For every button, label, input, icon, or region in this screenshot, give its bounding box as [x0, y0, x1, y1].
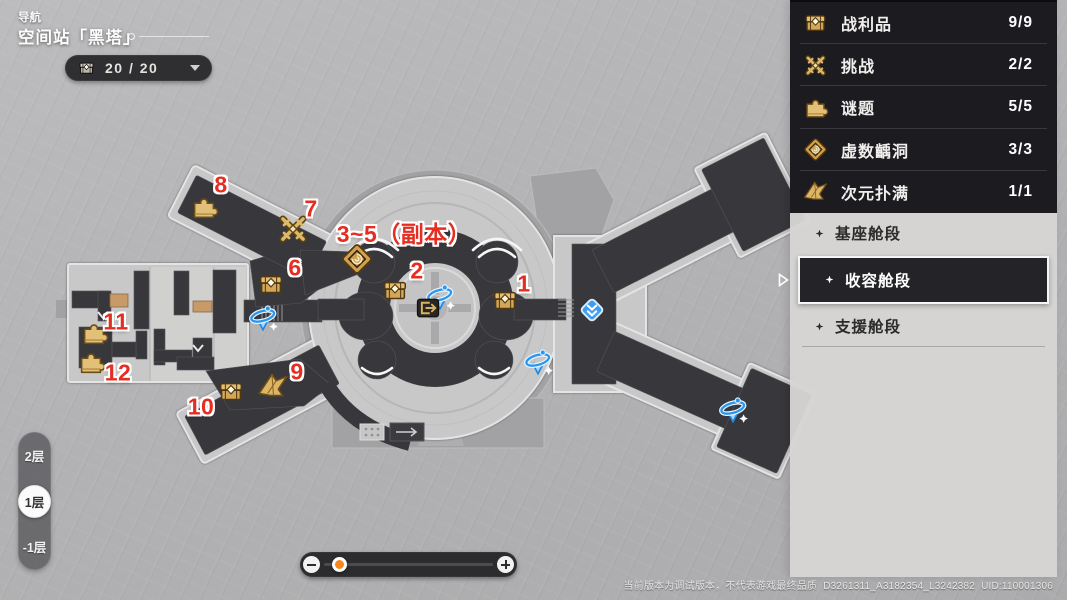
legend-stats: 战利品 9/9 挑战 2/2 谜题 5/5 虚数齲洞 3/3 次元扑满 1/1 [790, 0, 1057, 213]
marker-number[interactable]: 9 [290, 359, 303, 386]
zoom-slider [300, 552, 517, 577]
deco-ring [128, 33, 135, 40]
elevator-icon[interactable] [414, 294, 442, 322]
chest-counter-value: 20 / 20 [105, 60, 158, 76]
floor-button-2层[interactable]: 2层 [25, 446, 44, 465]
version-disclaimer: 当前版本为调试版本，不代表游戏最终品质D3261311_A3182354_L32… [617, 577, 1053, 592]
marker-number[interactable]: 1 [517, 271, 530, 298]
puzzle-marker-icon[interactable] [76, 347, 106, 377]
stat-value: 1/1 [1008, 183, 1033, 201]
marker-number[interactable]: 7 [304, 196, 317, 223]
region-label: 支援舱段 [835, 315, 901, 337]
zoom-slider-track[interactable] [324, 563, 493, 566]
zoom-out-button[interactable] [303, 556, 320, 573]
stat-row-chest[interactable]: 战利品 9/9 [790, 2, 1057, 44]
chevron-down-icon [190, 65, 200, 71]
star-bullet-icon [815, 322, 824, 331]
uid-text: UID:110001306 [981, 581, 1053, 592]
floor-button--1层[interactable]: -1层 [23, 537, 47, 556]
bird-marker-icon[interactable] [256, 369, 290, 403]
chest-icon [802, 10, 829, 37]
zoom-in-button[interactable] [497, 556, 514, 573]
region-label: 基座舱段 [835, 222, 901, 244]
breadcrumb: 导航 [18, 9, 41, 25]
region-item-1[interactable]: 收容舱段 [798, 256, 1049, 304]
stat-value: 5/5 [1008, 98, 1033, 116]
stat-row-swords[interactable]: 挑战 2/2 [790, 44, 1057, 86]
map-screen: 123~5（副本）6789101112 导航 空间站「黑塔」 20 / 20 战… [0, 0, 1067, 600]
floor-selector: 2层1层-1层 [18, 432, 51, 570]
stat-label: 次元扑满 [841, 180, 909, 204]
stat-label: 战利品 [841, 11, 892, 35]
stat-value: 3/3 [1008, 141, 1033, 159]
stat-value: 9/9 [1008, 14, 1033, 32]
region-list: 基座舱段 收容舱段 支援舱段 [790, 213, 1057, 577]
space-anchor-icon[interactable] [716, 392, 750, 426]
legend-panel: 战利品 9/9 挑战 2/2 谜题 5/5 虚数齲洞 3/3 次元扑满 1/1 … [790, 0, 1057, 577]
teleport-point-icon[interactable] [578, 296, 606, 324]
chest-counter-dropdown[interactable]: 20 / 20 [65, 55, 212, 81]
rift-icon [802, 136, 829, 163]
puzzle-icon [802, 94, 829, 121]
chest-icon [77, 59, 96, 78]
marker-number[interactable]: 3~5（副本） [337, 215, 472, 249]
marker-number[interactable]: 2 [410, 258, 423, 285]
marker-number[interactable]: 12 [105, 360, 132, 387]
region-label: 收容舱段 [845, 269, 911, 291]
star-bullet-icon [825, 275, 834, 284]
build-code: D3261311_A3182354_L3242382 [823, 581, 975, 592]
stat-label: 谜题 [841, 95, 875, 119]
star-bullet-icon [815, 229, 824, 238]
chest-marker-icon[interactable] [256, 270, 286, 300]
space-anchor-icon[interactable] [521, 344, 555, 378]
marker-number[interactable]: 8 [214, 172, 227, 199]
chest-marker-icon[interactable] [490, 286, 520, 316]
swords-icon [802, 52, 829, 79]
title-decoration [128, 33, 210, 40]
stat-label: 虚数齲洞 [841, 138, 909, 162]
space-anchor-icon[interactable] [246, 300, 280, 334]
marker-number[interactable]: 11 [103, 309, 128, 336]
chest-marker-icon[interactable] [216, 377, 246, 407]
chest-marker-icon[interactable] [380, 276, 410, 306]
bird-icon [802, 178, 829, 205]
floor-button-1层[interactable]: 1层 [18, 485, 51, 518]
region-item-0[interactable]: 基座舱段 [790, 213, 1057, 254]
selected-region-cursor [778, 273, 789, 287]
marker-number[interactable]: 6 [288, 255, 301, 282]
stat-row-puzzle[interactable]: 谜题 5/5 [790, 86, 1057, 128]
zoom-slider-knob[interactable] [332, 557, 347, 572]
stat-row-bird[interactable]: 次元扑满 1/1 [790, 171, 1057, 213]
disclaimer-text: 当前版本为调试版本，不代表游戏最终品质 [623, 581, 817, 592]
marker-number[interactable]: 10 [188, 394, 215, 421]
stat-label: 挑战 [841, 53, 875, 77]
deco-line [139, 36, 209, 37]
stat-row-rift[interactable]: 虚数齲洞 3/3 [790, 129, 1057, 171]
page-title: 空间站「黑塔」 [18, 24, 141, 48]
stat-value: 2/2 [1008, 56, 1033, 74]
region-item-2[interactable]: 支援舱段 [790, 306, 1057, 347]
